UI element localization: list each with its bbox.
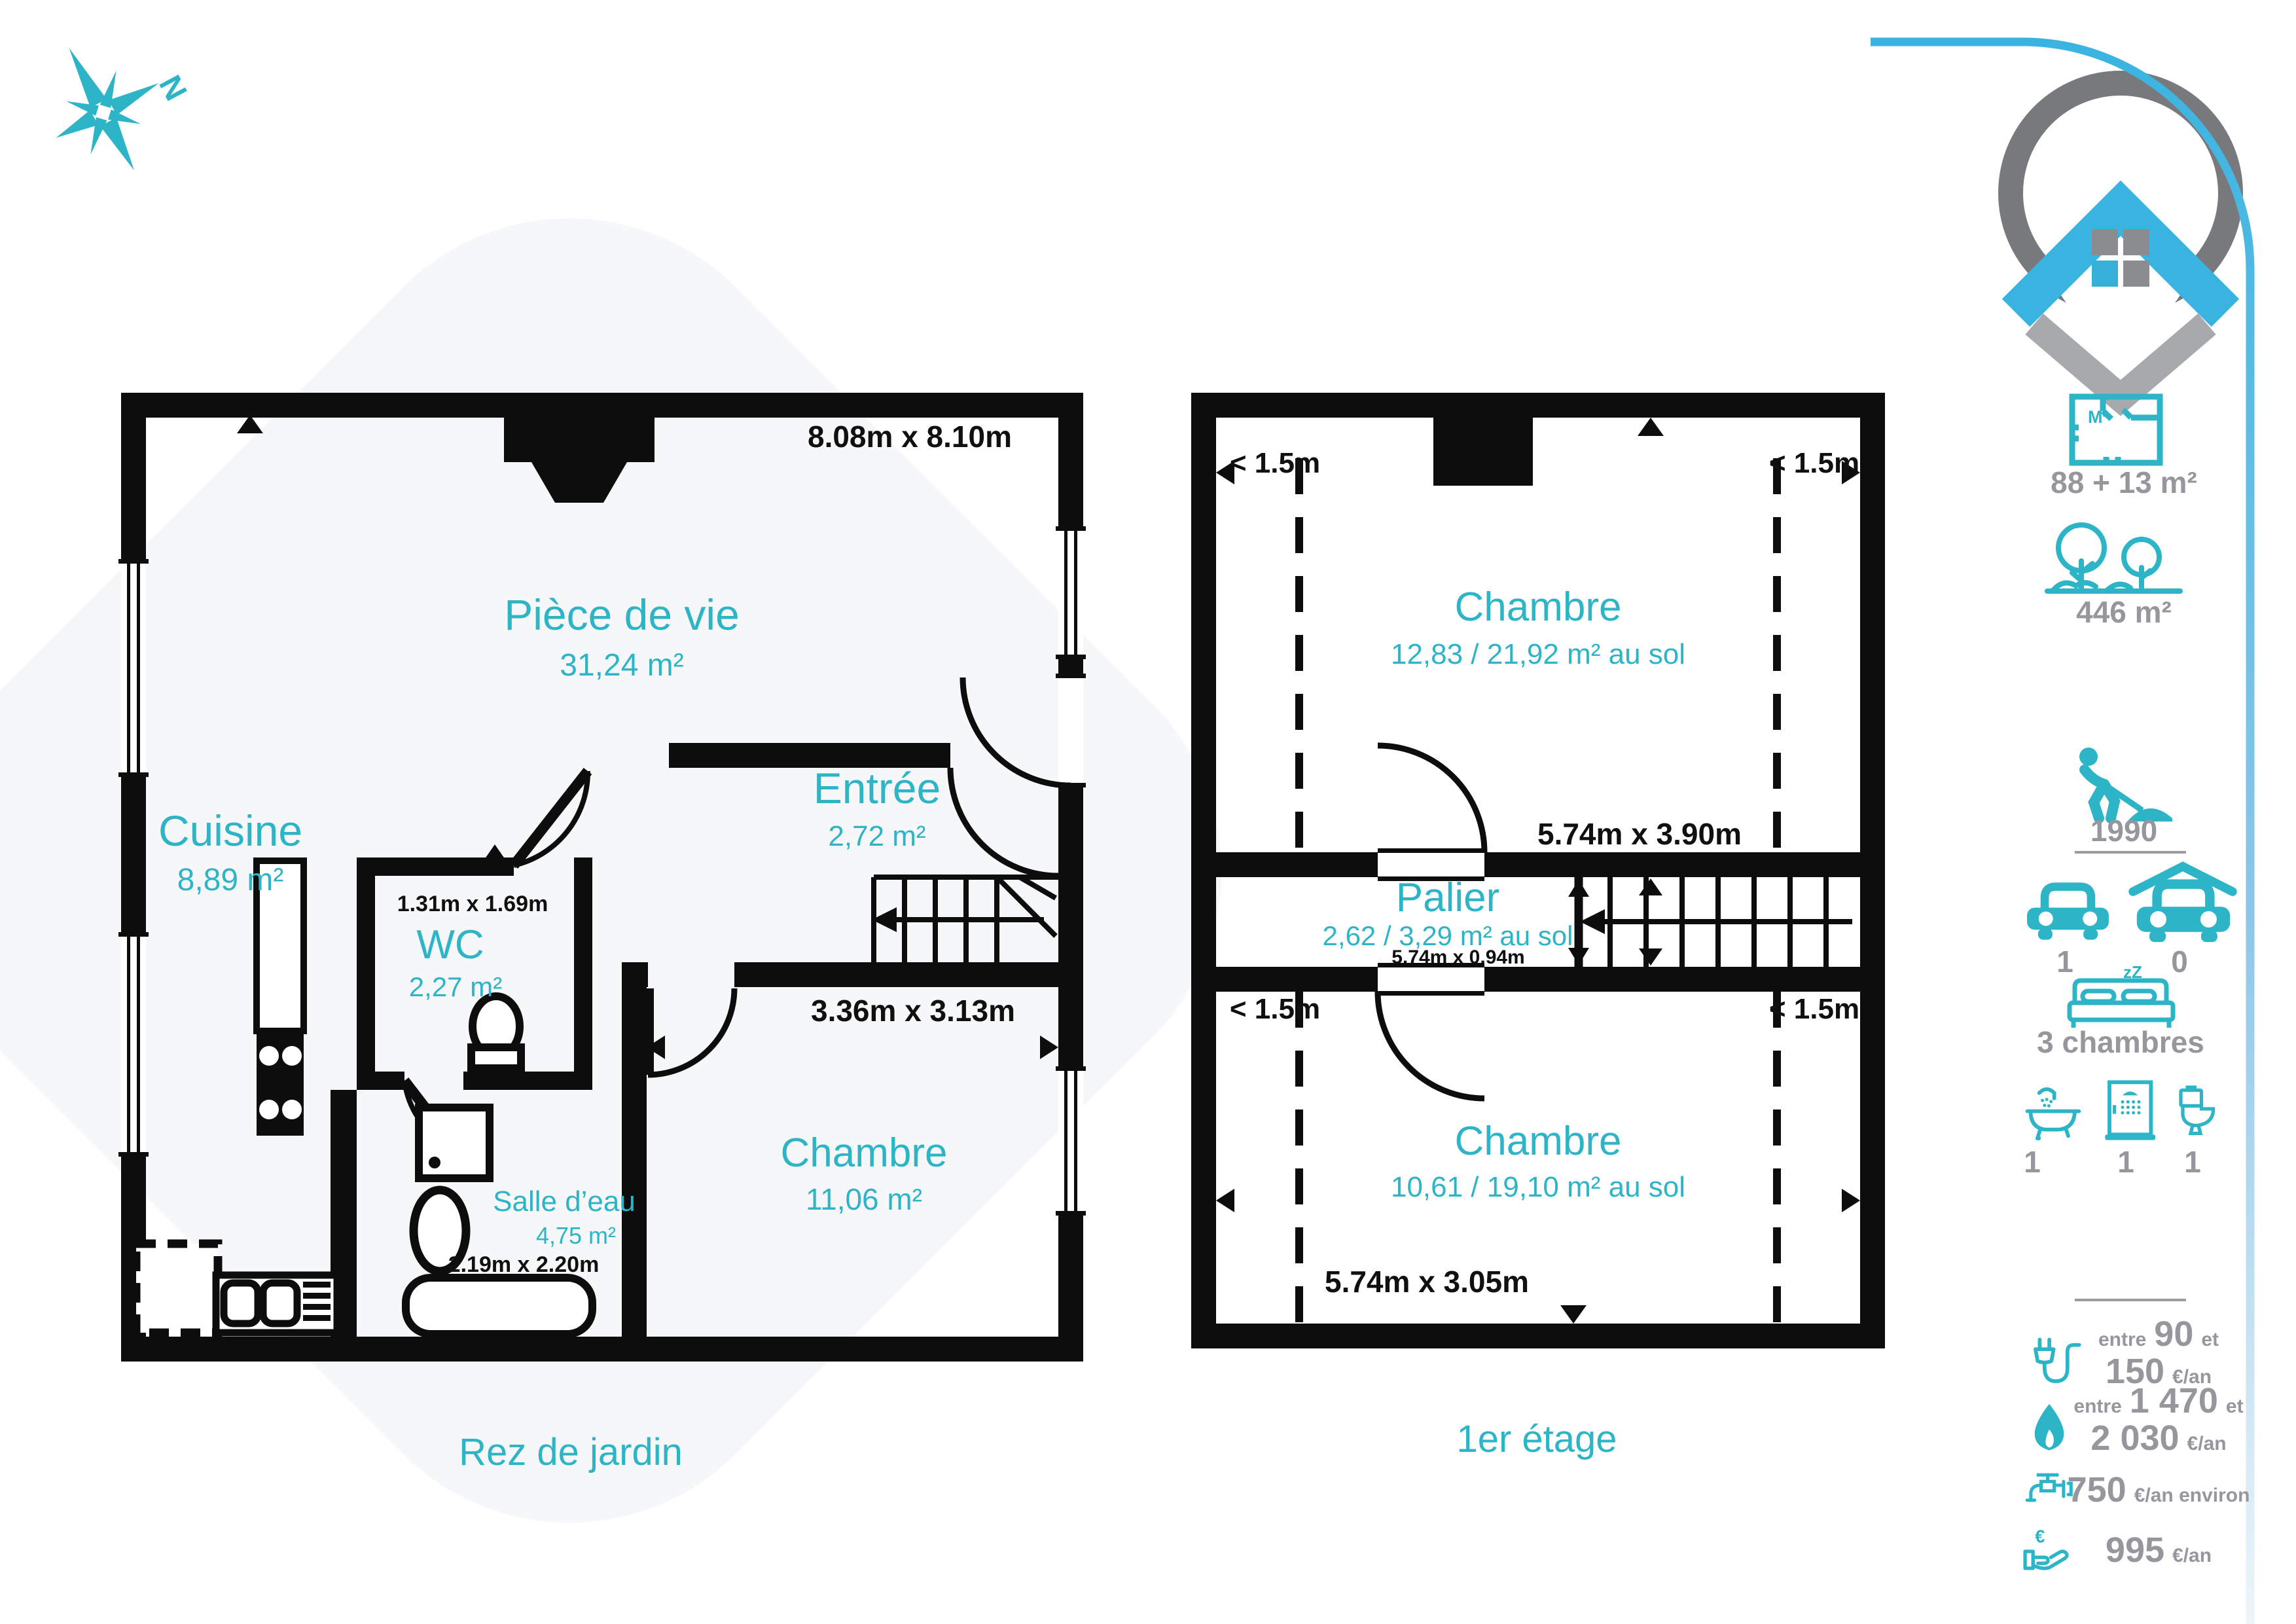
water-cost: 750 €/an environ	[2080, 1471, 2237, 1509]
living-room-label: Pièce de vie	[504, 590, 740, 639]
dim-overall-rdj: 8.08m x 8.10m	[808, 420, 1012, 454]
land-trees-icon	[2043, 520, 2184, 598]
gas-cost: entre 1 470 et 2 030 €/an	[2080, 1382, 2237, 1456]
floor-plan-first-floor: < 1.5m < 1.5m < 1.5m < 1.5m Chambre 12,8…	[1191, 393, 1885, 1460]
sidebar-divider-1	[2075, 851, 2186, 854]
window-right-bedroom	[1056, 1066, 1086, 1216]
bathtub	[406, 1278, 592, 1334]
toilet-icon	[2168, 1085, 2221, 1140]
sidebar-divider-2	[2075, 1299, 2186, 1301]
gas-flame-icon	[2030, 1402, 2068, 1453]
chimney-etage	[1433, 418, 1533, 486]
bedroom-rdj-label: Chambre	[781, 1130, 948, 1176]
shower-count: 1	[2106, 1144, 2145, 1180]
bedroom1-dim: 5.74m x 3.90m	[1537, 817, 1742, 851]
gas-word2: et	[2226, 1396, 2244, 1417]
water-value: 750	[2068, 1471, 2126, 1509]
wc-dim: 1.31m x 1.69m	[397, 892, 548, 916]
window-right-living	[1056, 526, 1086, 659]
height-note-bottom-right: < 1.5m	[1769, 993, 1859, 1025]
bed-icon: zZ	[2060, 964, 2181, 1032]
gas-word1: entre	[2073, 1396, 2121, 1417]
bedroom1-label: Chambre	[1455, 585, 1622, 630]
construction-worker-icon	[2052, 745, 2179, 823]
toilet-fixture	[471, 996, 521, 1068]
construction-year-value: 1990	[2022, 813, 2225, 848]
electricity-word2: et	[2201, 1329, 2219, 1350]
euro-symbol: €	[2035, 1526, 2045, 1546]
height-note-bottom-left: < 1.5m	[1230, 993, 1320, 1025]
floor-plan-icon-label: M²	[2088, 407, 2108, 427]
water-unit: €/an environ	[2134, 1485, 2250, 1506]
bathroom-label: Salle d’eau	[493, 1185, 636, 1218]
electricity-cost: entre 90 et 150 €/an	[2080, 1316, 2237, 1390]
bedroom2-label: Chambre	[1455, 1119, 1622, 1164]
tax-value: 995	[2106, 1532, 2164, 1569]
electricity-value1: 90	[2154, 1316, 2193, 1353]
bedroom2-dim: 5.74m x 3.05m	[1325, 1265, 1529, 1299]
window-left-upper	[118, 559, 149, 777]
bedroom2-area: 10,61 / 19,10 m² au sol	[1391, 1171, 1685, 1203]
land-area-value: 446 m²	[2022, 594, 2225, 630]
floor-plan-canvas: N	[0, 0, 2296, 1624]
caption-rdj: Rez de jardin	[459, 1431, 683, 1473]
electricity-plug-icon	[2024, 1335, 2081, 1393]
bath-count: 1	[2013, 1144, 2052, 1180]
compass-north-label: N	[152, 70, 193, 106]
height-note-top-right: < 1.5m	[1769, 447, 1859, 479]
tax-hand-euro-icon: €	[2021, 1526, 2075, 1572]
window-left-lower	[118, 932, 149, 1157]
garage-car-icon	[2126, 861, 2240, 943]
landing-label: Palier	[1396, 875, 1500, 920]
gas-value2: 2 030	[2090, 1420, 2179, 1457]
landing-door-bottom	[1378, 963, 1484, 1098]
living-room-area: 31,24 m²	[560, 648, 683, 683]
bedroom-rdj-dim: 3.36m x 3.13m	[811, 994, 1015, 1028]
stairs-etage	[1568, 877, 1852, 967]
shower-icon	[2100, 1079, 2159, 1140]
bathtub-icon	[2017, 1080, 2089, 1140]
floor-area-value: 88 + 13 m²	[2022, 465, 2225, 500]
caption-etage: 1er étage	[1456, 1418, 1617, 1460]
bathroom-dim: 2.19m x 2.20m	[448, 1252, 600, 1277]
gas-unit: €/an	[2187, 1434, 2227, 1454]
gas-value1: 1 470	[2130, 1382, 2218, 1420]
bathroom-area: 4,75 m²	[536, 1222, 616, 1249]
wc-area: 2,27 m²	[409, 971, 502, 1002]
kitchen-sink	[216, 1275, 337, 1333]
height-note-top-left: < 1.5m	[1230, 447, 1320, 479]
bedroom1-area: 12,83 / 21,92 m² au sol	[1391, 638, 1685, 670]
wc-count: 1	[2173, 1144, 2212, 1180]
tax-cost: 995 €/an	[2080, 1532, 2237, 1569]
kitchen-label: Cuisine	[158, 806, 302, 855]
compass-rose-icon: N	[17, 18, 193, 198]
washing-machine	[419, 1108, 490, 1178]
tax-unit: €/an	[2172, 1545, 2212, 1566]
kitchen-area: 8,89 m²	[177, 863, 284, 897]
shower-tray	[136, 1244, 218, 1333]
floor-plan-icon: M²	[2067, 391, 2165, 469]
landing-dim: 5.74m x 0.94m	[1391, 947, 1524, 968]
wc-label: WC	[416, 922, 484, 967]
electricity-word1: entre	[2098, 1329, 2146, 1350]
parking-car-icon	[2024, 878, 2112, 941]
floor-plan-page: N	[0, 0, 2296, 1624]
entry-label: Entrée	[814, 764, 941, 812]
landing-door-top	[1378, 746, 1484, 881]
bedrooms-value: 3 chambres	[2016, 1024, 2225, 1060]
stove	[257, 1031, 304, 1136]
entry-area: 2,72 m²	[828, 820, 925, 852]
bedroom-rdj-area: 11,06 m²	[806, 1182, 922, 1216]
